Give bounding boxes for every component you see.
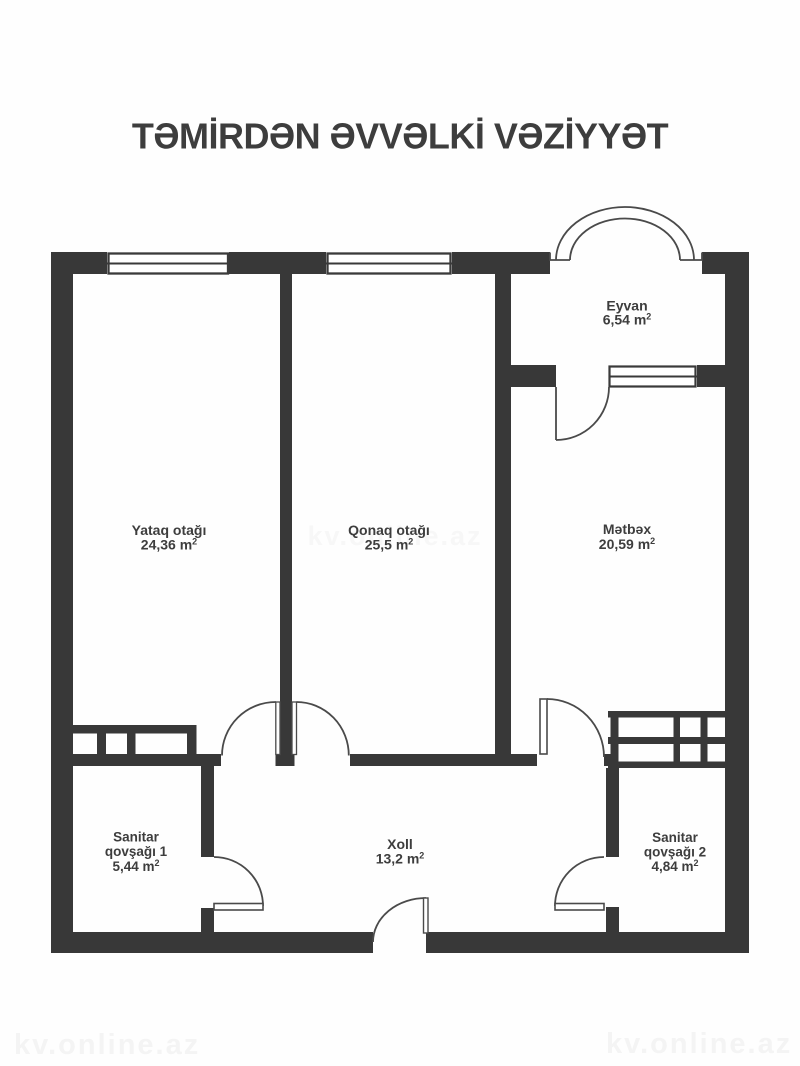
- svg-text:24,36 m2: 24,36 m2: [141, 537, 197, 553]
- svg-text:kv.online.az: kv.online.az: [14, 1029, 200, 1061]
- svg-text:4,84 m2: 4,84 m2: [651, 858, 698, 874]
- svg-text:25,5 m2: 25,5 m2: [365, 537, 414, 553]
- svg-text:qovşağı 1: qovşağı 1: [105, 844, 168, 859]
- svg-text:kv.online.az: kv.online.az: [606, 1028, 792, 1060]
- svg-text:13,2 m2: 13,2 m2: [376, 851, 425, 867]
- svg-text:Sanitar: Sanitar: [652, 830, 699, 845]
- svg-text:20,59 m2: 20,59 m2: [599, 536, 655, 552]
- svg-text:5,44 m2: 5,44 m2: [112, 858, 159, 874]
- svg-text:Sanitar: Sanitar: [113, 830, 160, 845]
- svg-text:TƏMİRDƏN ƏVVƏLKİ VƏZİYYƏT: TƏMİRDƏN ƏVVƏLKİ VƏZİYYƏT: [132, 116, 669, 157]
- svg-text:6,54 m2: 6,54 m2: [603, 312, 652, 328]
- svg-text:Mətbəx: Mətbəx: [603, 521, 651, 537]
